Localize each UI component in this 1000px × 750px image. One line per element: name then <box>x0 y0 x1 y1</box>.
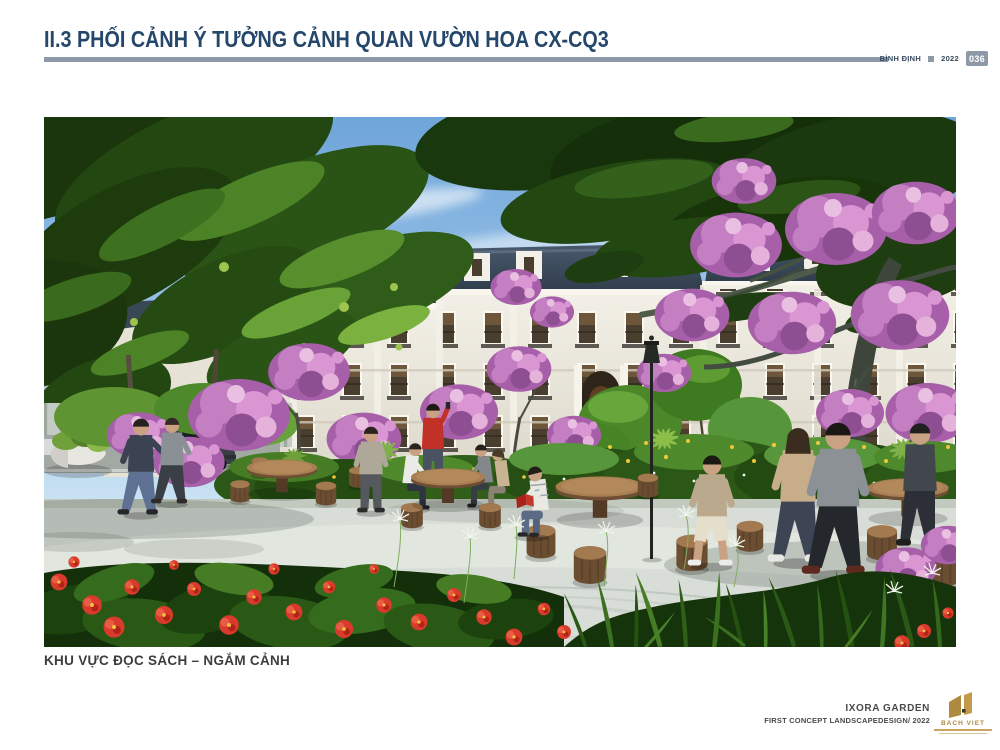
year-label: 2022 <box>941 54 959 63</box>
garden-render-illustration <box>44 117 956 647</box>
year-swatch <box>928 56 934 62</box>
bachviet-logo: BACH VIET <box>934 692 992 734</box>
page-number-badge: 036 <box>966 51 988 66</box>
province-label: BÌNH ĐỊNH <box>880 54 921 63</box>
garden-render <box>44 117 956 647</box>
project-subtitle: FIRST CONCEPT LANDSCAPEDESIGN/ 2022 <box>764 716 930 725</box>
logo-tagline-line <box>939 733 988 734</box>
logo-mark-icon <box>946 692 980 719</box>
render-caption: KHU VỰC ĐỌC SÁCH – NGẮM CẢNH <box>44 653 290 668</box>
page-title: II.3 PHỐI CẢNH Ý TƯỞNG CẢNH QUAN VƯỜN HO… <box>44 26 609 53</box>
logo-wordmark: BACH VIET <box>934 720 992 727</box>
slide-page: II.3 PHỐI CẢNH Ý TƯỞNG CẢNH QUAN VƯỜN HO… <box>0 0 1000 750</box>
header-meta: BÌNH ĐỊNH 2022 036 <box>880 51 988 66</box>
title-underline <box>44 57 888 62</box>
logo-underline <box>934 729 992 731</box>
footer-credits: IXORA GARDEN FIRST CONCEPT LANDSCAPEDESI… <box>764 703 930 725</box>
project-name: IXORA GARDEN <box>764 703 930 714</box>
